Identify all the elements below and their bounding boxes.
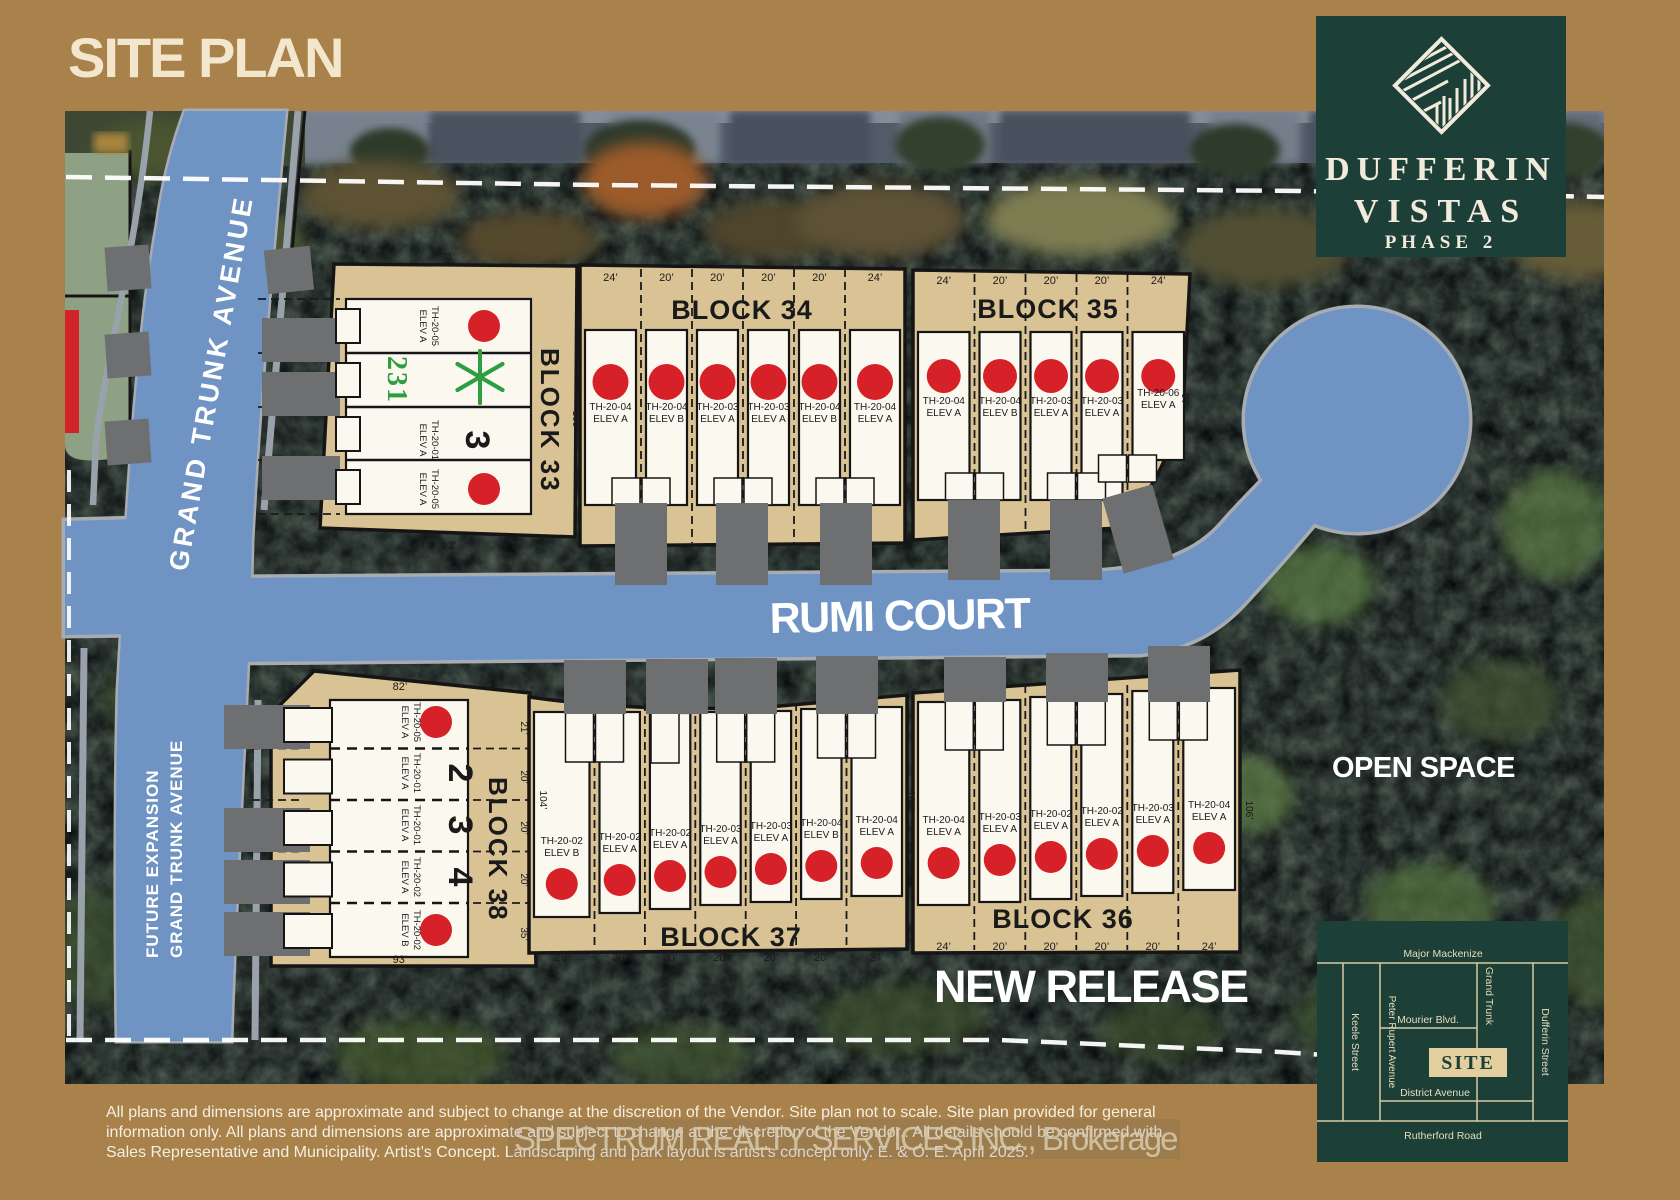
svg-text:TH-20-05: TH-20-05 xyxy=(411,702,422,742)
svg-text:District Avenue: District Avenue xyxy=(1400,1087,1470,1099)
svg-text:PHASE 2: PHASE 2 xyxy=(1385,232,1498,253)
svg-text:ELEV B: ELEV B xyxy=(544,848,579,859)
svg-text:TH-20-04: TH-20-04 xyxy=(645,402,688,413)
svg-text:TH-20-02: TH-20-02 xyxy=(411,910,422,950)
svg-text:97’: 97’ xyxy=(1179,393,1190,406)
svg-text:24’: 24’ xyxy=(936,941,951,953)
svg-text:106’: 106’ xyxy=(570,411,581,430)
svg-text:TH-20-03: TH-20-03 xyxy=(696,402,739,413)
svg-text:20’: 20’ xyxy=(1095,275,1110,287)
svg-text:93’: 93’ xyxy=(393,954,408,966)
svg-text:TH-20-03: TH-20-03 xyxy=(1081,396,1124,407)
svg-text:BLOCK 33: BLOCK 33 xyxy=(535,348,565,493)
svg-text:ELEV A: ELEV A xyxy=(399,757,410,790)
svg-text:ELEV A: ELEV A xyxy=(860,827,895,838)
svg-text:ELEV A: ELEV A xyxy=(983,824,1018,835)
svg-text:ELEV A: ELEV A xyxy=(602,844,637,855)
svg-text:TH-20-04: TH-20-04 xyxy=(589,402,632,413)
svg-text:TH-20-02: TH-20-02 xyxy=(599,832,642,843)
svg-text:ELEV A: ELEV A xyxy=(1034,408,1069,419)
svg-text:ELEV B: ELEV B xyxy=(649,414,684,425)
svg-text:TH-20-02: TH-20-02 xyxy=(649,828,692,839)
svg-text:20’: 20’ xyxy=(663,952,678,964)
svg-text:TH-20-02: TH-20-02 xyxy=(1081,806,1124,817)
svg-text:TH-20-04: TH-20-04 xyxy=(923,815,966,826)
svg-text:ELEV A: ELEV A xyxy=(927,408,962,419)
svg-text:20’: 20’ xyxy=(713,952,728,964)
svg-text:ELEV A: ELEV A xyxy=(399,861,410,894)
svg-text:TH-20-03: TH-20-03 xyxy=(750,821,793,832)
svg-text:BLOCK 37: BLOCK 37 xyxy=(660,922,802,952)
svg-text:TH-20-04: TH-20-04 xyxy=(798,402,841,413)
svg-text:231: 231 xyxy=(381,356,412,404)
svg-text:TH-20-01: TH-20-01 xyxy=(411,805,422,845)
svg-text:ELEV A: ELEV A xyxy=(417,310,428,343)
svg-text:82’: 82’ xyxy=(393,681,408,693)
svg-text:20’: 20’ xyxy=(814,952,829,964)
svg-text:20’: 20’ xyxy=(761,272,776,284)
svg-text:TH-20-04: TH-20-04 xyxy=(854,402,897,413)
svg-text:Grand Trunk: Grand Trunk xyxy=(1483,967,1495,1026)
svg-text:GRAND TRUNK AVENUE: GRAND TRUNK AVENUE xyxy=(167,740,186,958)
svg-text:TH-20-01: TH-20-01 xyxy=(411,753,422,793)
svg-text:24’: 24’ xyxy=(1202,941,1217,953)
svg-text:ELEV A: ELEV A xyxy=(751,414,786,425)
svg-text:TH-20-06: TH-20-06 xyxy=(1137,388,1180,399)
svg-text:Rutherford Road: Rutherford Road xyxy=(1404,1130,1482,1142)
svg-text:Major Mackenize: Major Mackenize xyxy=(1403,948,1483,960)
svg-text:Keele Street: Keele Street xyxy=(1349,1013,1361,1071)
svg-text:TH-20-05: TH-20-05 xyxy=(429,306,440,346)
svg-text:ELEV A: ELEV A xyxy=(703,836,738,847)
svg-text:TH-20-02: TH-20-02 xyxy=(1030,809,1073,820)
svg-text:ELEV A: ELEV A xyxy=(858,414,893,425)
svg-text:SITE: SITE xyxy=(1441,1052,1495,1074)
svg-text:20’: 20’ xyxy=(1094,941,1109,953)
svg-text:VISTAS: VISTAS xyxy=(1354,193,1528,230)
svg-text:TH-20-03: TH-20-03 xyxy=(1030,396,1073,407)
svg-text:4: 4 xyxy=(441,868,479,887)
svg-text:104’: 104’ xyxy=(905,791,916,810)
svg-text:ELEV A: ELEV A xyxy=(1192,812,1227,823)
svg-text:ELEV A: ELEV A xyxy=(417,473,428,506)
svg-text:FUTURE EXPANSION: FUTURE EXPANSION xyxy=(143,769,162,958)
svg-text:BLOCK 38: BLOCK 38 xyxy=(483,777,513,922)
svg-text:20’: 20’ xyxy=(710,272,725,284)
svg-text:ELEV A: ELEV A xyxy=(399,809,410,842)
svg-text:ELEV B: ELEV B xyxy=(399,913,410,946)
svg-text:ELEV A: ELEV A xyxy=(1141,400,1176,411)
svg-text:20’: 20’ xyxy=(659,272,674,284)
svg-text:24’: 24’ xyxy=(603,272,618,284)
svg-text:ELEV B: ELEV B xyxy=(804,830,839,841)
svg-text:ELEV A: ELEV A xyxy=(1136,815,1171,826)
svg-text:TH-20-04: TH-20-04 xyxy=(923,396,966,407)
svg-text:ELEV A: ELEV A xyxy=(1034,821,1069,832)
svg-text:93’: 93’ xyxy=(442,540,457,552)
svg-text:20’: 20’ xyxy=(764,952,779,964)
svg-text:TH-20-05: TH-20-05 xyxy=(429,469,440,509)
svg-text:ELEV A: ELEV A xyxy=(754,833,789,844)
svg-text:TH-20-03: TH-20-03 xyxy=(747,402,790,413)
svg-text:26’: 26’ xyxy=(554,952,569,964)
svg-text:ELEV B: ELEV B xyxy=(802,414,837,425)
svg-text:ELEV A: ELEV A xyxy=(399,706,410,739)
svg-text:24’: 24’ xyxy=(868,272,883,284)
svg-text:20’: 20’ xyxy=(1145,941,1160,953)
svg-text:BLOCK 36: BLOCK 36 xyxy=(992,904,1134,934)
svg-text:OPEN SPACE: OPEN SPACE xyxy=(1332,752,1515,784)
svg-text:24’: 24’ xyxy=(1151,275,1166,287)
svg-text:BLOCK 35: BLOCK 35 xyxy=(977,294,1119,324)
svg-text:TH-20-02: TH-20-02 xyxy=(541,836,584,847)
svg-text:ELEV A: ELEV A xyxy=(1085,818,1120,829)
svg-text:ELEV A: ELEV A xyxy=(1085,408,1120,419)
svg-text:24’: 24’ xyxy=(869,952,884,964)
svg-text:TH-20-02: TH-20-02 xyxy=(411,857,422,897)
svg-text:20’: 20’ xyxy=(812,272,827,284)
svg-text:20’: 20’ xyxy=(612,952,627,964)
svg-text:20’: 20’ xyxy=(993,275,1008,287)
svg-text:Mourier Blvd.: Mourier Blvd. xyxy=(1397,1014,1459,1026)
svg-text:ELEV A: ELEV A xyxy=(593,414,628,425)
svg-text:TH-20-01: TH-20-01 xyxy=(429,420,440,460)
svg-text:ELEV A: ELEV A xyxy=(700,414,735,425)
svg-text:All plans and dimensions are a: All plans and dimensions are approximate… xyxy=(106,1104,1156,1121)
svg-text:RUMI COURT: RUMI COURT xyxy=(769,590,1031,643)
svg-text:Dufferin Street: Dufferin Street xyxy=(1539,1008,1551,1076)
svg-text:ELEV B: ELEV B xyxy=(982,408,1017,419)
svg-text:BLOCK 34: BLOCK 34 xyxy=(671,295,813,325)
svg-text:SITE PLAN: SITE PLAN xyxy=(68,26,342,89)
svg-text:DUFFERIN: DUFFERIN xyxy=(1325,151,1557,188)
svg-text:93’: 93’ xyxy=(440,251,455,263)
svg-text:TH-20-04: TH-20-04 xyxy=(979,396,1022,407)
svg-text:TH-20-03: TH-20-03 xyxy=(1132,803,1175,814)
svg-text:TH-20-03: TH-20-03 xyxy=(979,812,1022,823)
svg-text:TH-20-04: TH-20-04 xyxy=(1188,800,1231,811)
svg-text:104’: 104’ xyxy=(537,791,548,810)
svg-text:TH-20-04: TH-20-04 xyxy=(800,818,843,829)
svg-text:ELEV A: ELEV A xyxy=(653,840,688,851)
svg-text:20’: 20’ xyxy=(1044,275,1059,287)
svg-text:20’: 20’ xyxy=(1043,941,1058,953)
svg-text:ELEV A: ELEV A xyxy=(417,424,428,457)
svg-text:NEW RELEASE: NEW RELEASE xyxy=(934,961,1248,1012)
svg-text:ELEV A: ELEV A xyxy=(926,827,961,838)
svg-text:Peter Rupert Avenue: Peter Rupert Avenue xyxy=(1386,996,1397,1089)
svg-text:2: 2 xyxy=(441,764,479,783)
svg-text:24’: 24’ xyxy=(936,275,951,287)
svg-text:TH-20-03: TH-20-03 xyxy=(699,824,742,835)
svg-text:106’: 106’ xyxy=(1243,801,1254,820)
svg-text:3: 3 xyxy=(458,431,496,450)
svg-text:3: 3 xyxy=(441,816,479,835)
svg-text:SPECTRUM REALTY SERVICES INC.,: SPECTRUM REALTY SERVICES INC., Brokerage xyxy=(514,1120,1178,1157)
svg-text:20’: 20’ xyxy=(992,941,1007,953)
svg-text:TH-20-04: TH-20-04 xyxy=(856,815,899,826)
